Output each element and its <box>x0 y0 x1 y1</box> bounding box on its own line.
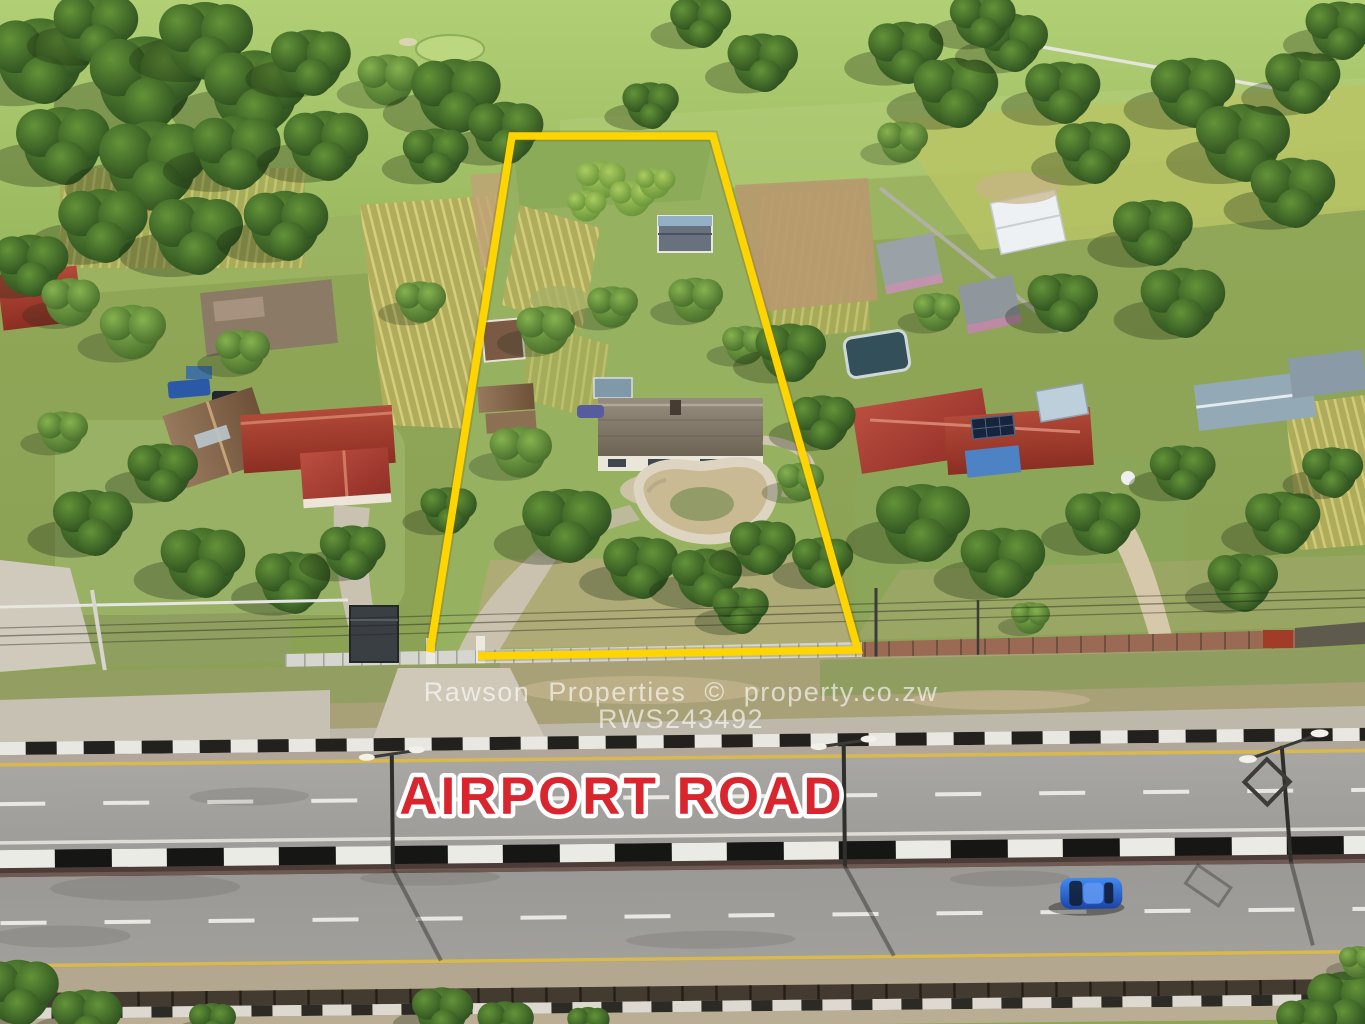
solar-panels <box>971 415 1015 439</box>
watermark-reference: RWS243492 <box>598 704 764 734</box>
blue-awning <box>965 445 1022 477</box>
road-name-label: AIRPORT ROAD <box>399 767 844 826</box>
red-gate <box>1263 630 1293 648</box>
parked-car-small <box>577 405 604 418</box>
top-outbuilding <box>658 216 712 252</box>
aerial-photo-canvas: Rawson Properties © property.co.zw RWS24… <box>0 0 1365 1024</box>
neighbor-pool <box>843 329 910 378</box>
watermark-credit: Rawson Properties © property.co.zw <box>424 677 939 707</box>
aerial-photo: Rawson Properties © property.co.zw RWS24… <box>0 0 1365 1024</box>
